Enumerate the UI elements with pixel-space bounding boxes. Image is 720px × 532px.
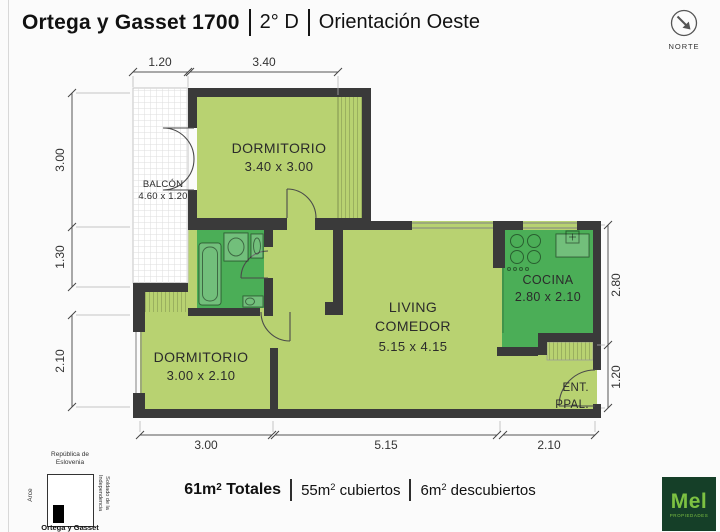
dim-top-2: 3.40 <box>252 55 276 69</box>
street-left: Arce <box>27 475 37 515</box>
label-cocina-dims: 2.80 x 2.10 <box>515 290 581 304</box>
dim-bottom-3: 2.10 <box>537 438 561 452</box>
label-living-1: LIVING <box>389 299 437 315</box>
label-living-dims: 5.15 x 4.15 <box>379 339 448 354</box>
label-dormitorio-2-dims: 3.00 x 2.10 <box>167 368 236 383</box>
covered-area: 55m2 cubiertos <box>301 482 400 499</box>
wall-segment <box>593 221 601 370</box>
wall-segment <box>497 347 538 356</box>
dim-right-1: 2.80 <box>609 273 623 297</box>
label-entrada-1: ENT. <box>562 382 589 394</box>
agency-logo: Mel PROPIEDADES <box>662 477 716 531</box>
wall-segment <box>133 283 188 292</box>
label-cocina: COCINA <box>522 273 573 287</box>
entry-step-hatch <box>547 342 593 360</box>
floorplan-page: Ortega y Gasset 1700 2° D Orientación Oe… <box>0 0 720 532</box>
label-dormitorio-1: DORMITORIO <box>232 140 327 156</box>
dim-bottom-1: 3.00 <box>194 438 218 452</box>
dim-top-1: 1.20 <box>148 55 172 69</box>
wall-segment <box>188 88 371 97</box>
agency-logo-subtitle: PROPIEDADES <box>670 513 709 518</box>
footer-divider <box>290 479 292 501</box>
dim-bottom-2: 5.15 <box>374 438 398 452</box>
label-balcon: BALCÓN <box>143 179 183 190</box>
footer-divider <box>409 479 411 501</box>
wall-segment <box>270 348 278 416</box>
wall-segment <box>538 333 547 355</box>
wall-segment <box>188 97 197 128</box>
closet-hatch-dorm2 <box>145 292 188 312</box>
wall-segment <box>264 278 273 316</box>
label-dormitorio-2: DORMITORIO <box>154 349 249 365</box>
wall-segment <box>325 302 343 315</box>
dim-left-2: 1.30 <box>53 245 67 269</box>
wall-segment <box>493 221 505 268</box>
total-area: 61m2 Totales <box>184 481 281 499</box>
wall-segment <box>188 308 260 316</box>
wall-segment <box>133 393 145 409</box>
wall-segment <box>333 230 343 302</box>
label-balcon-dims: 4.60 x 1.20 <box>138 191 187 202</box>
dim-left-3: 2.10 <box>53 349 67 373</box>
agency-logo-name: Mel <box>671 491 708 512</box>
wall-segment <box>264 227 273 247</box>
wall-segment <box>133 409 601 418</box>
wall-segment <box>362 97 371 221</box>
dim-right-2: 1.20 <box>609 365 623 389</box>
closet-hatch-dorm1 <box>338 97 362 218</box>
street-right: Soldado de la Independencia <box>96 462 110 524</box>
label-dormitorio-1-dims: 3.40 x 3.00 <box>245 159 314 174</box>
uncovered-area: 6m2 descubiertos <box>420 482 535 499</box>
label-entrada-2: PPAL. <box>555 399 589 411</box>
street-bottom: Ortega y Gasset <box>25 523 115 532</box>
wall-segment <box>538 333 601 342</box>
dim-left-1: 3.00 <box>53 148 67 172</box>
minimap-building-marker <box>53 505 64 523</box>
label-living-2: COMEDOR <box>375 318 451 334</box>
wall-segment <box>315 218 371 230</box>
